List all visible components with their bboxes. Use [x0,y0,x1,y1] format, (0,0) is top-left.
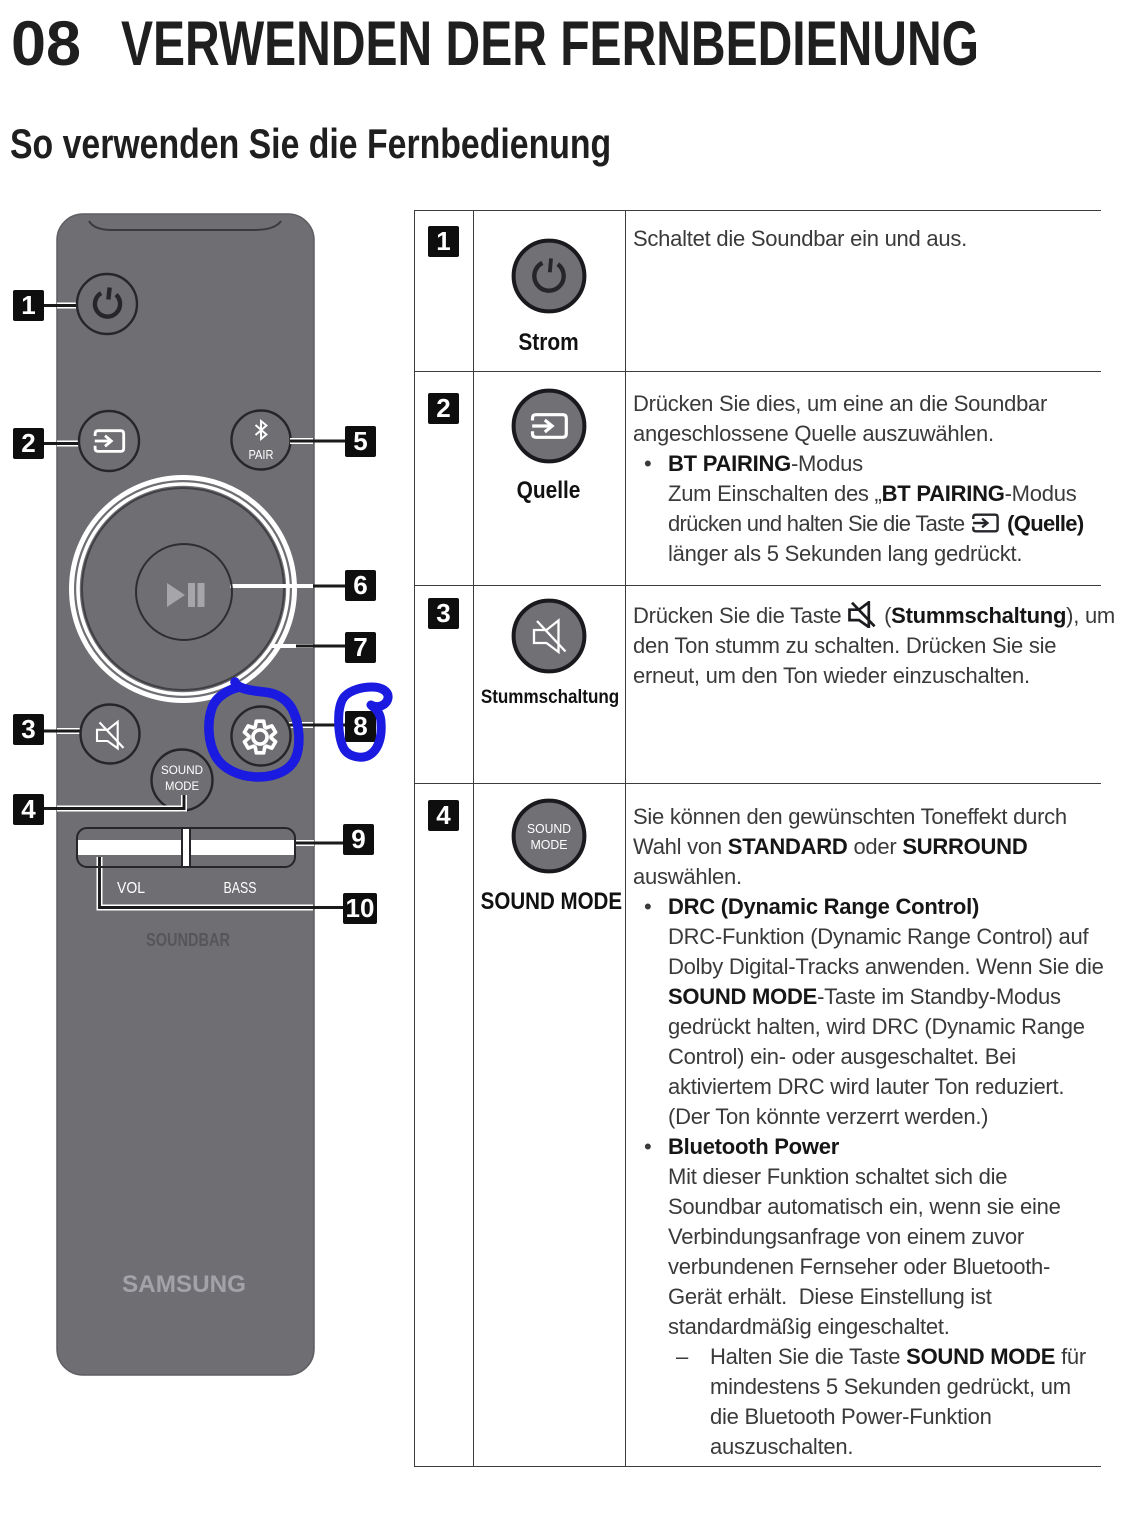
svg-text:SAMSUNG: SAMSUNG [122,1271,246,1298]
svg-text:BASS: BASS [224,880,257,897]
svg-text:VOL: VOL [117,880,145,897]
svg-text:SOUNDBAR: SOUNDBAR [146,929,230,950]
svg-text:MODE: MODE [531,837,568,852]
svg-text:SOUND: SOUND [527,821,571,836]
svg-text:SOUND: SOUND [161,763,203,777]
svg-text:MODE: MODE [165,779,199,793]
svg-text:PAIR: PAIR [249,448,274,462]
